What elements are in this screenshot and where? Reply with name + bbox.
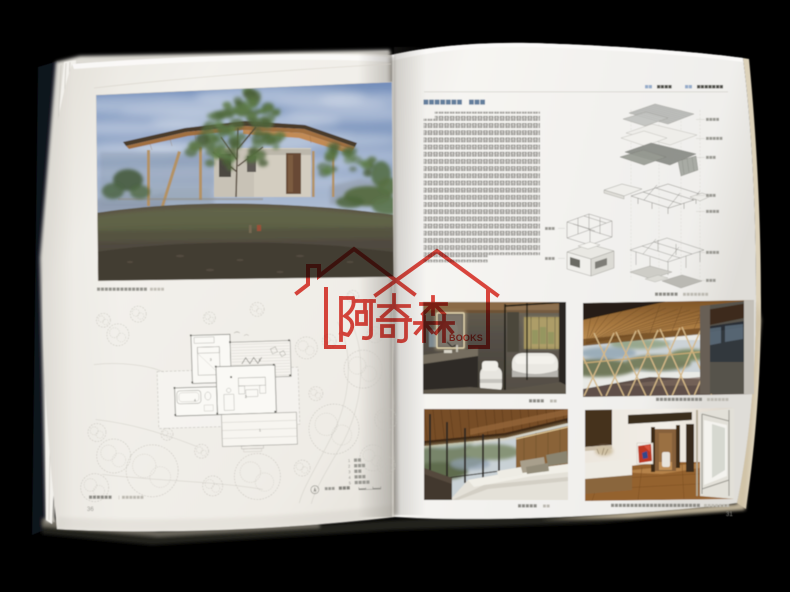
svg-text:3: 3 [210,358,212,362]
svg-text:2: 2 [245,395,247,399]
svg-text:1: 1 [259,428,261,432]
svg-text:31: 31 [726,512,733,518]
svg-text:BOOKS: BOOKS [449,333,483,343]
svg-text:4: 4 [194,398,196,402]
svg-text:36: 36 [87,507,94,513]
svg-text:5: 5 [259,358,261,362]
